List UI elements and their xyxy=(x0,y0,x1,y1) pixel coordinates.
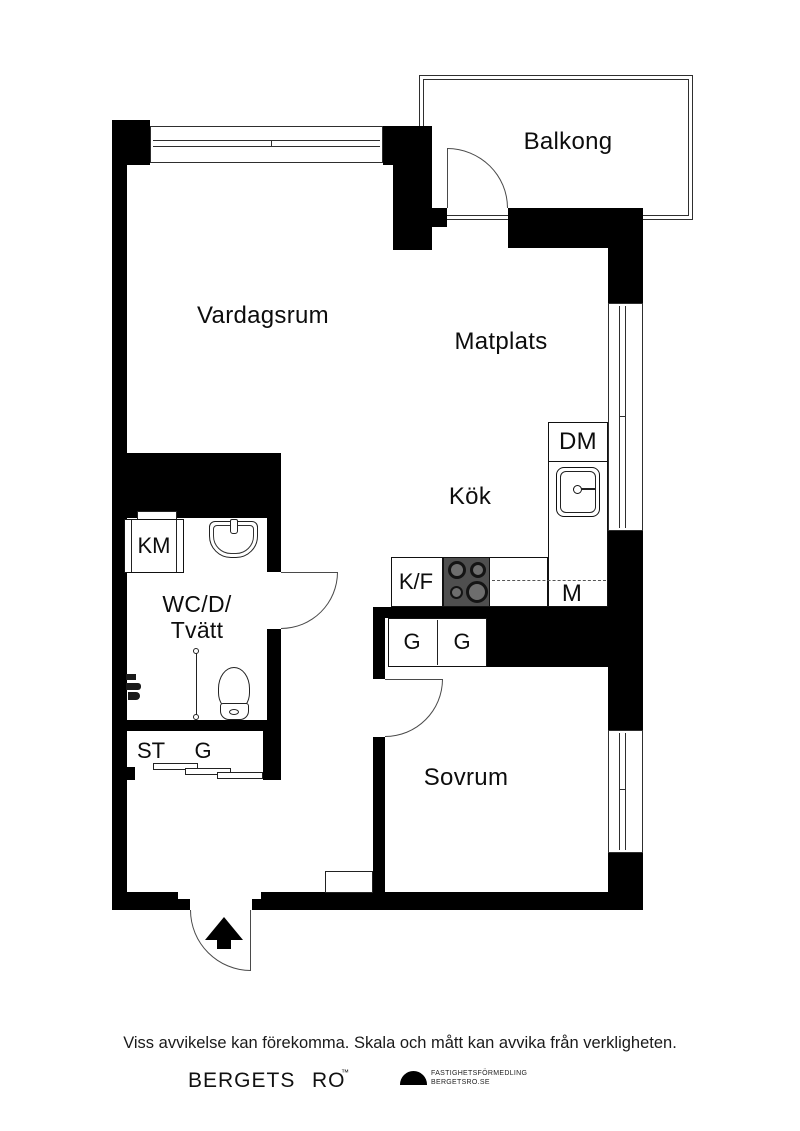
shower-mixer-icon xyxy=(126,683,141,690)
label-wardrobe-1: G xyxy=(403,629,420,655)
window-glass xyxy=(153,140,380,147)
wall-segment xyxy=(267,629,281,720)
wall-segment xyxy=(373,607,385,679)
wall-segment xyxy=(112,767,135,780)
stove-burner xyxy=(450,586,463,599)
shower-rail-end xyxy=(193,714,199,720)
window-glass xyxy=(619,733,626,850)
shower-mixer-icon xyxy=(128,692,140,700)
wall-segment xyxy=(608,248,643,303)
room-label-living: Vardagsrum xyxy=(197,302,329,330)
bedroom-door-arc xyxy=(385,679,443,737)
room-label-kitchen: Kök xyxy=(449,483,491,511)
wall-segment xyxy=(383,126,432,165)
shower-rail-end xyxy=(193,648,199,654)
wall-segment xyxy=(127,720,281,731)
washing-machine-line xyxy=(131,520,132,572)
door-jamb xyxy=(178,892,190,899)
label-fridge-freezer: K/F xyxy=(399,569,433,595)
brand-tagline-line1: FASTIGHETSFÖRMEDLING xyxy=(431,1070,527,1077)
wall-segment xyxy=(432,208,447,227)
stove-burner xyxy=(448,561,466,579)
wall-segment xyxy=(127,453,281,518)
shower-rail xyxy=(196,653,197,717)
room-label-bathroom: WC/D/ Tvätt xyxy=(162,591,231,643)
basin-tap-icon xyxy=(230,519,238,534)
room-label-dining: Matplats xyxy=(454,328,547,356)
label-closet-g: G xyxy=(194,738,211,764)
wall-segment xyxy=(252,892,643,910)
label-closet-st: ST xyxy=(137,738,165,764)
wall-segment xyxy=(393,165,432,250)
wall-segment xyxy=(112,120,150,165)
wall-segment xyxy=(373,737,385,892)
sink-faucet-handle xyxy=(581,488,595,490)
brand-logo: BERGETS RO ™ FASTIGHETSFÖRMEDLING BERGET… xyxy=(0,1066,800,1096)
washing-machine-line xyxy=(176,520,177,572)
room-label-balcony: Balkong xyxy=(524,128,613,156)
brand-trademark: ™ xyxy=(341,1068,349,1077)
label-dishwasher: DM xyxy=(559,428,597,456)
disclaimer-text: Viss avvikelse kan förekomma. Skala och … xyxy=(0,1034,800,1053)
floor-plan: Balkong Vardagsrum Matplats Kök Sovrum W… xyxy=(0,0,800,1131)
wall-segment xyxy=(487,618,643,667)
window-mullion xyxy=(619,416,626,417)
wall-segment xyxy=(508,208,643,248)
counter-dashed-line xyxy=(492,580,606,581)
room-label-bathroom-line2: Tvätt xyxy=(162,617,231,643)
window-glass xyxy=(619,306,626,528)
stove-burner xyxy=(470,562,486,578)
wall-segment xyxy=(263,731,281,780)
entrance-arrow-stem xyxy=(217,939,231,949)
brand-tagline-line2: BERGETSRO.SE xyxy=(431,1079,490,1086)
shower-mixer-icon xyxy=(126,674,136,680)
label-washing-machine: KM xyxy=(138,533,171,559)
stove-burner xyxy=(466,581,488,603)
wardrobe-divider xyxy=(437,620,438,665)
wall-segment xyxy=(385,607,643,618)
toilet-button xyxy=(229,709,239,715)
label-wardrobe-2: G xyxy=(453,629,470,655)
wall-segment xyxy=(267,518,281,572)
door-jamb xyxy=(252,892,261,899)
sliding-door-panel xyxy=(217,772,263,779)
bathroom-door-arc xyxy=(281,572,338,629)
brand-mark-icon xyxy=(400,1071,427,1085)
window-mullion xyxy=(619,789,626,790)
hall-cabinet xyxy=(325,871,373,893)
room-label-bedroom: Sovrum xyxy=(424,764,509,792)
brand-word1: BERGETS xyxy=(188,1069,295,1093)
room-label-bathroom-line1: WC/D/ xyxy=(162,591,231,617)
entrance-arrow-icon xyxy=(205,917,243,940)
window-mullion xyxy=(271,140,272,147)
label-microwave: M xyxy=(562,580,582,608)
